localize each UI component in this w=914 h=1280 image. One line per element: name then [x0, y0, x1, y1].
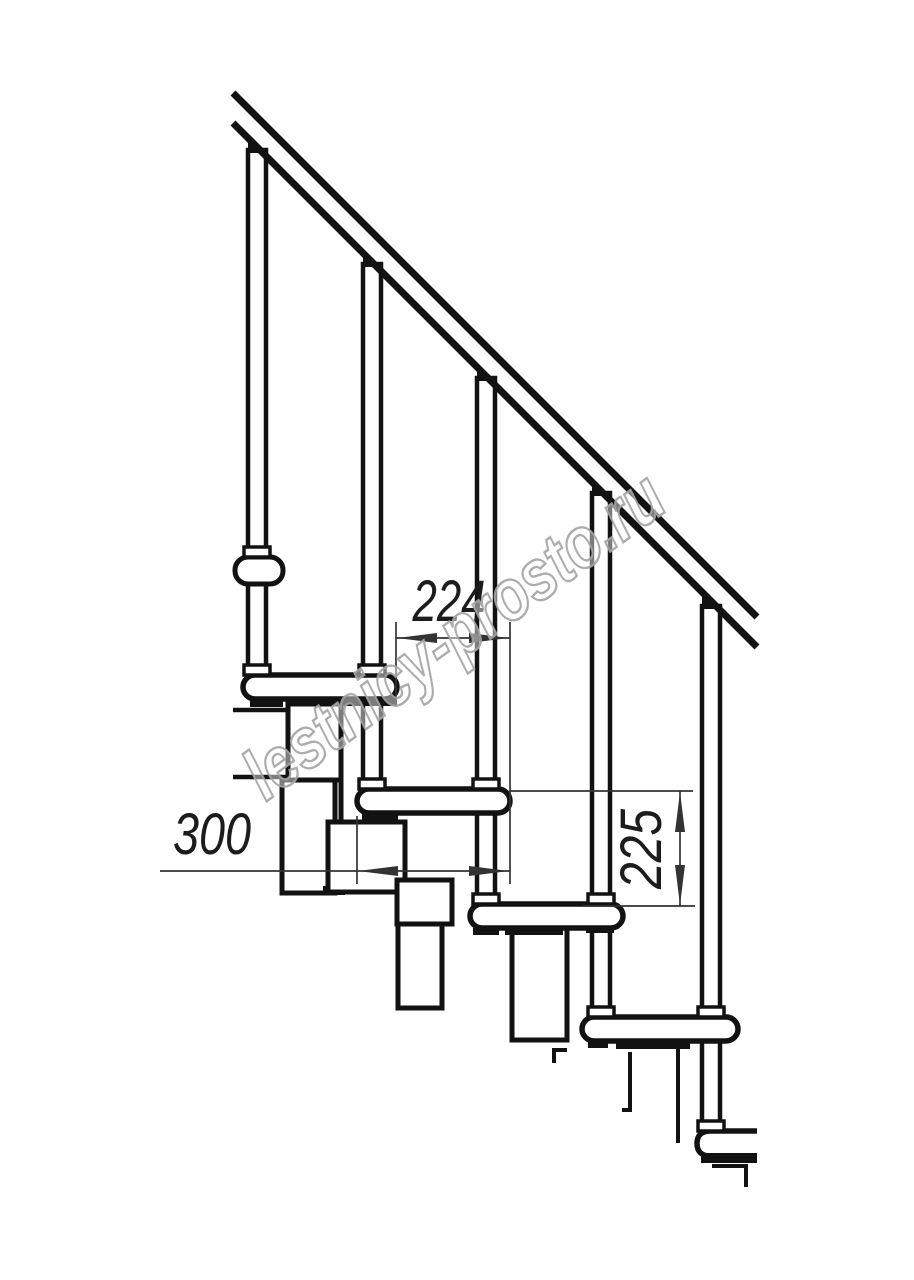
- module-4-break-line-a: [622, 1052, 630, 1110]
- module-box-2b: [397, 880, 452, 924]
- tread-4: [582, 1017, 738, 1041]
- baluster-3-collar-tread-2: [473, 779, 499, 789]
- tread-1-bracket-left: [250, 699, 283, 707]
- tread-4-bracket-left: [588, 1041, 608, 1048]
- baluster-3-collar-tread-3: [473, 894, 499, 904]
- tread-3-bracket-left: [473, 928, 499, 935]
- tread-2-bracket: [362, 813, 398, 822]
- baluster-1-collar-tread-1: [244, 665, 270, 675]
- tread-3: [470, 904, 623, 928]
- module-box-2c: [398, 924, 442, 1008]
- baluster-1-collar-landing: [244, 547, 270, 557]
- module-box-2a: [328, 822, 405, 892]
- tread-3-bracket-mid: [505, 927, 563, 935]
- dim-225-label: 225: [609, 808, 674, 889]
- baluster-5-collar-tread-4: [698, 1007, 724, 1017]
- tread-4-bracket: [616, 1041, 690, 1049]
- baluster-4-collar-tread-3: [588, 894, 614, 904]
- tread-5-bracket: [701, 1153, 757, 1163]
- module-3-break-line: [554, 1050, 567, 1063]
- landing-tread-end-view: [235, 557, 283, 584]
- baluster-5-collar-tread-5: [698, 1121, 724, 1131]
- module-5-break-line: [712, 1166, 746, 1187]
- baluster-5: [702, 606, 720, 1132]
- module-box-3: [512, 927, 567, 1040]
- drawing-page: 224 300 225 lestnicy-prosto.ru: [0, 0, 914, 1280]
- tread-5-cut: [697, 1131, 757, 1156]
- tread-3-bracket-right: [586, 927, 614, 933]
- dim-225-arrow-down: [675, 865, 685, 905]
- baluster-2-collar-tread-2: [359, 779, 385, 789]
- tread-2: [357, 789, 510, 813]
- baluster-4-collar-tread-4: [588, 1007, 614, 1017]
- dim-300-label: 300: [173, 802, 251, 867]
- staircase-technical-drawing: 224 300 225 lestnicy-prosto.ru: [0, 0, 914, 1280]
- baluster-1: [248, 150, 266, 677]
- dim-225-arrow-up: [675, 792, 685, 832]
